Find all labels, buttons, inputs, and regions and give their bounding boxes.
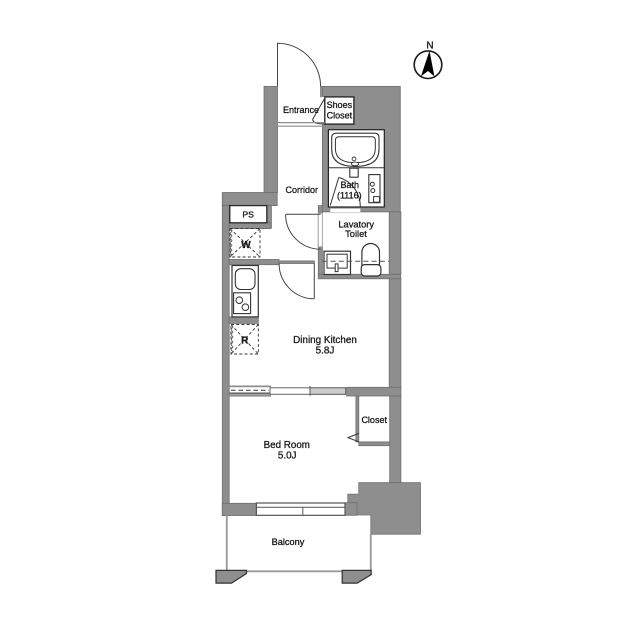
svg-text:Toilet: Toilet	[345, 229, 367, 239]
svg-text:Shoes: Shoes	[327, 100, 353, 110]
svg-text:(1116): (1116)	[337, 190, 362, 200]
svg-text:Balcony: Balcony	[272, 537, 305, 547]
svg-text:Dining Kitchen: Dining Kitchen	[293, 335, 357, 346]
svg-text:5.0J: 5.0J	[278, 451, 297, 462]
svg-text:N: N	[426, 41, 433, 52]
svg-text:PS: PS	[242, 210, 254, 220]
svg-text:R: R	[241, 336, 249, 347]
svg-text:5.8J: 5.8J	[316, 345, 335, 356]
svg-text:Entrance: Entrance	[283, 105, 319, 115]
svg-text:Bed Room: Bed Room	[264, 440, 310, 451]
svg-text:Closet: Closet	[327, 111, 353, 121]
svg-text:Corridor: Corridor	[286, 185, 319, 195]
svg-text:W: W	[241, 240, 251, 251]
svg-text:Bath: Bath	[341, 180, 360, 190]
svg-text:Closet: Closet	[361, 415, 387, 425]
